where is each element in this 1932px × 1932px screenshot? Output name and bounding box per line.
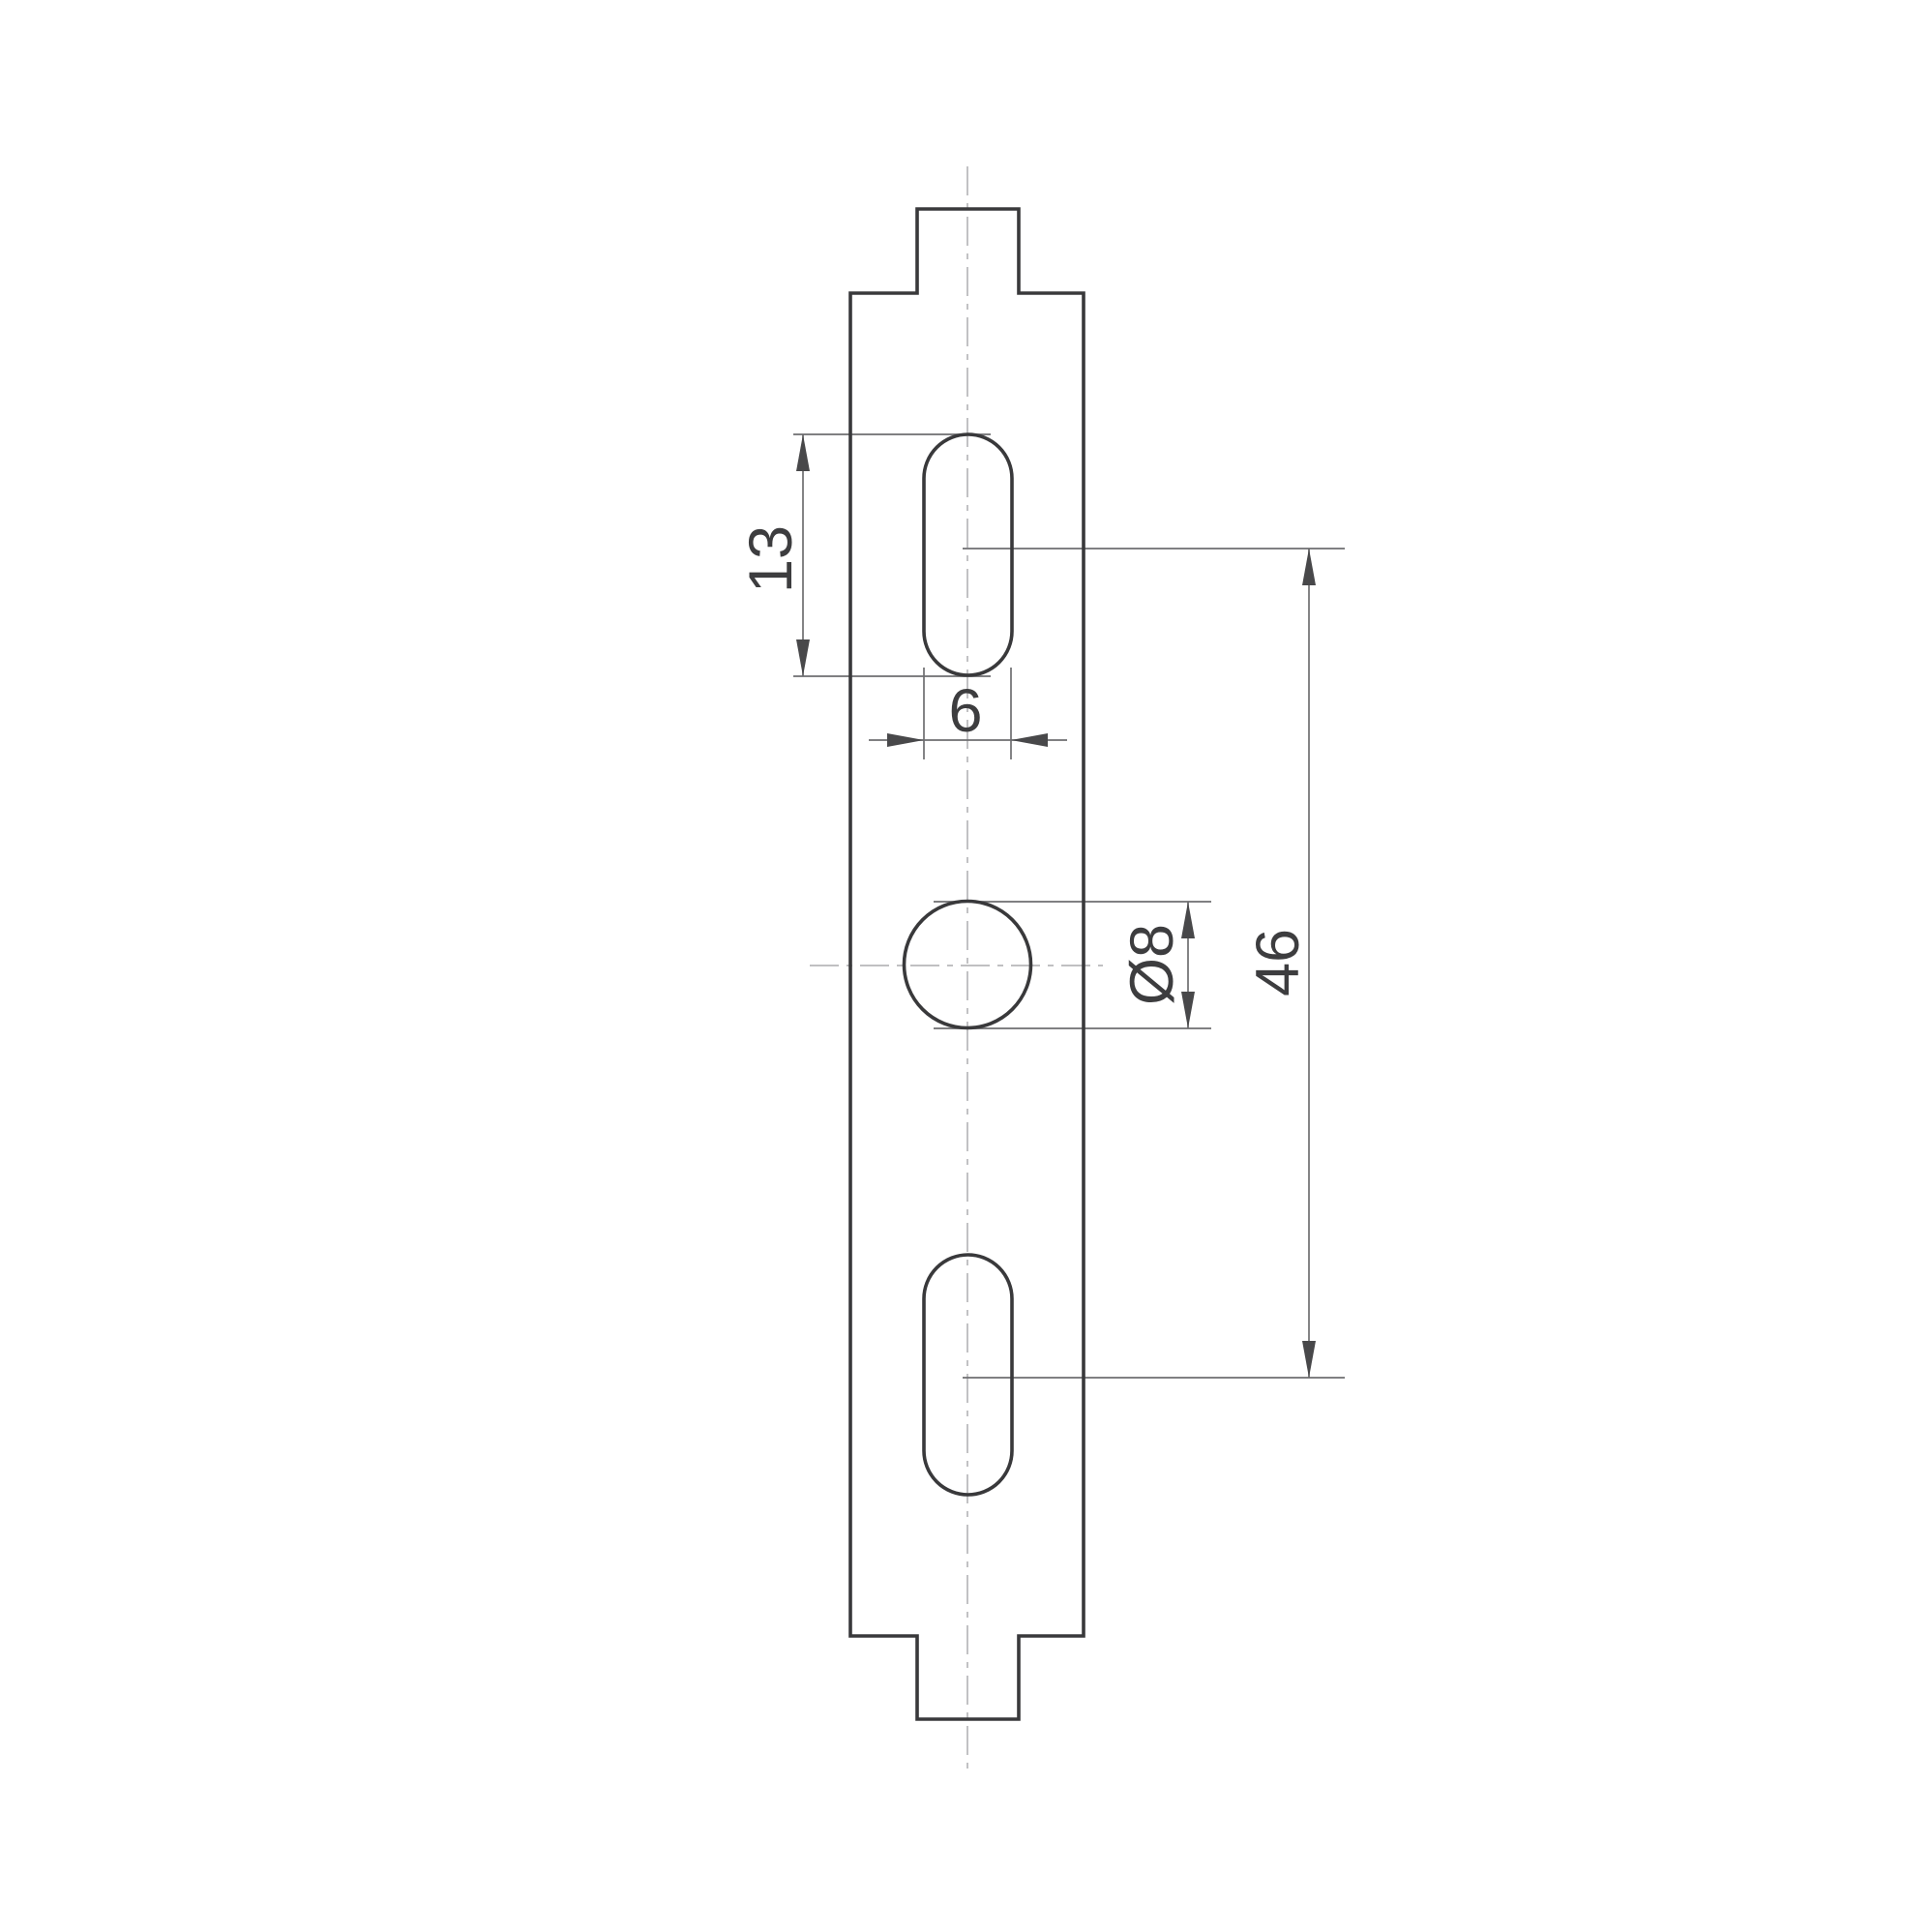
arrowhead-layer [796,434,1316,1378]
dim-6-label: 6 [948,677,982,745]
label-layer: 13 6 Ø8 46 [737,525,1312,1005]
technical-drawing: 13 6 Ø8 46 [0,0,1932,1932]
dim-13-label: 13 [737,525,805,593]
dim-13-arrow-up [796,434,810,471]
centerline-layer [810,166,1103,1770]
dim-46-label: 46 [1244,929,1312,996]
dim-6-arrow-right [887,733,924,747]
dim-46-arrow-up [1302,549,1316,585]
drawing-canvas: 13 6 Ø8 46 [0,0,1932,1932]
dim-6-arrow-left [1011,733,1048,747]
dim-13-arrow-down [796,639,810,676]
dim-46-arrow-down [1302,1341,1316,1378]
dim-d8-label: Ø8 [1118,924,1186,1005]
dimension-layer [793,434,1345,1378]
